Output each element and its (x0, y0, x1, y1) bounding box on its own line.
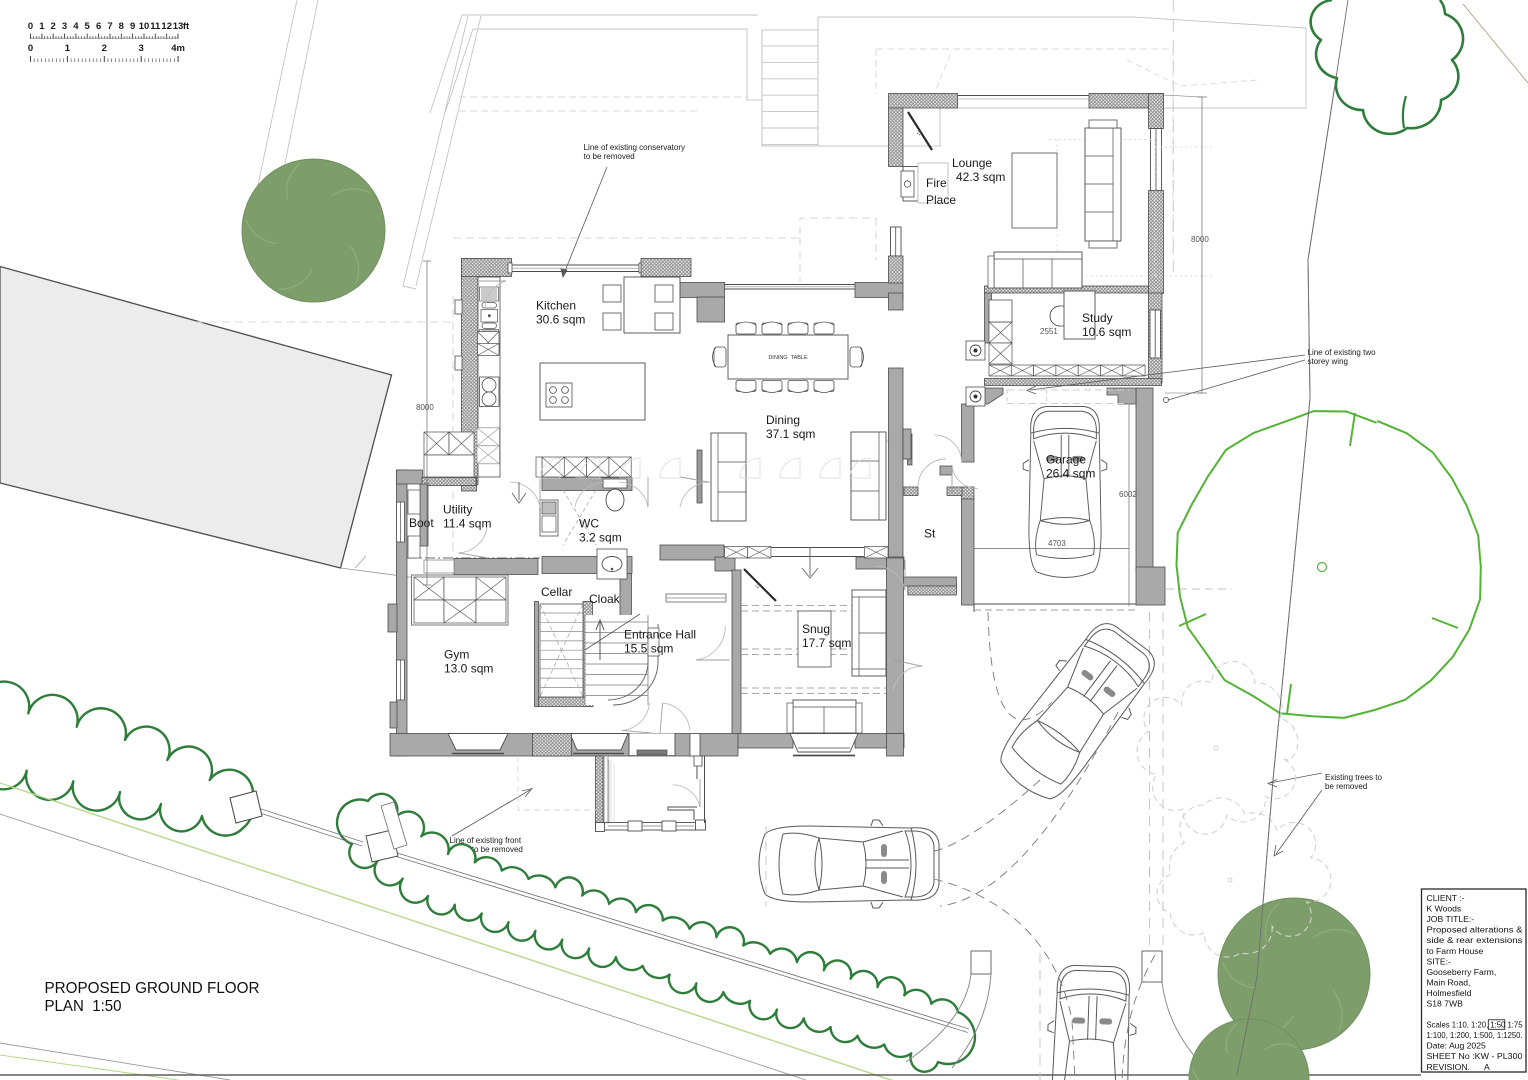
svg-text:Holmesfield: Holmesfield (1427, 988, 1472, 998)
svg-text:Scales 1:10, 1:20, 1:50 1:75: Scales 1:10, 1:20, 1:50 1:75 (1427, 1020, 1523, 1030)
svg-text:Garage: Garage (1046, 453, 1086, 467)
svg-text:St: St (924, 527, 936, 541)
svg-text:Cellar: Cellar (541, 585, 572, 599)
svg-text:6: 6 (96, 21, 101, 32)
svg-text:13.0 sqm: 13.0 sqm (444, 662, 493, 676)
svg-text:Lounge: Lounge (952, 156, 992, 170)
svg-text:30.6 sqm: 30.6 sqm (536, 313, 585, 327)
svg-text:1: 1 (65, 43, 71, 54)
svg-text:Boot: Boot (409, 516, 434, 530)
svg-text:37.1 sqm: 37.1 sqm (766, 427, 815, 441)
svg-text:ft: ft (183, 21, 190, 32)
svg-text:1:100, 1:200, 1:500, 1:1250.: 1:100, 1:200, 1:500, 1:1250. (1427, 1030, 1523, 1040)
svg-text:2: 2 (51, 21, 56, 32)
svg-text:Existing trees to: Existing trees to (1325, 773, 1382, 782)
svg-text:4703: 4703 (1048, 539, 1066, 548)
svg-text:to Farm House: to Farm House (1427, 946, 1484, 956)
svg-text:1: 1 (39, 21, 45, 32)
svg-text:10: 10 (139, 21, 150, 32)
svg-text:SITE:-: SITE:- (1427, 956, 1451, 966)
svg-text:REVISION.: REVISION. (1427, 1062, 1470, 1072)
svg-text:4m: 4m (171, 43, 185, 54)
svg-text:11: 11 (150, 21, 161, 32)
svg-text:PROPOSED GROUND FLOOR: PROPOSED GROUND FLOOR (45, 980, 260, 997)
svg-text:3: 3 (139, 43, 144, 54)
svg-text:Utility: Utility (443, 503, 472, 517)
svg-text:Line of existing two: Line of existing two (1308, 348, 1377, 357)
svg-text:17.7 sqm: 17.7 sqm (802, 636, 851, 650)
svg-text:SHEET No :KW - PL300: SHEET No :KW - PL300 (1427, 1051, 1523, 1061)
svg-text:Place: Place (926, 193, 956, 207)
svg-text:storey wing: storey wing (1308, 357, 1348, 366)
svg-text:3: 3 (62, 21, 67, 32)
svg-text:Main Road,: Main Road, (1427, 977, 1471, 987)
svg-text:be removed: be removed (1325, 782, 1367, 791)
svg-text:0: 0 (28, 21, 33, 32)
svg-text:Study: Study (1082, 311, 1113, 325)
svg-text:Kitchen: Kitchen (536, 299, 576, 313)
svg-text:13: 13 (173, 21, 184, 32)
svg-text:Fire: Fire (926, 176, 947, 190)
svg-text:10.6 sqm: 10.6 sqm (1082, 325, 1131, 339)
svg-text:CLIENT :-: CLIENT :- (1427, 893, 1465, 903)
svg-text:Entrance Hall: Entrance Hall (624, 628, 696, 642)
svg-text:PLAN 1:50: PLAN 1:50 (45, 998, 122, 1015)
svg-text:8: 8 (119, 21, 124, 32)
svg-text:3.2 sqm: 3.2 sqm (579, 531, 622, 545)
svg-text:to be removed: to be removed (584, 152, 635, 161)
svg-text:15.5 sqm: 15.5 sqm (624, 642, 673, 656)
svg-text:2551: 2551 (1040, 327, 1058, 336)
svg-text:9: 9 (130, 21, 135, 32)
svg-text:WC: WC (579, 517, 599, 531)
svg-text:42.3 sqm: 42.3 sqm (956, 170, 1005, 184)
svg-text:Cloak: Cloak (589, 592, 621, 606)
svg-text:S18 7WB: S18 7WB (1427, 999, 1464, 1009)
svg-text:26.4 sqm: 26.4 sqm (1046, 467, 1095, 481)
svg-text:K Woods: K Woods (1427, 904, 1462, 914)
svg-text:Dining: Dining (766, 413, 800, 427)
svg-text:A: A (1484, 1062, 1490, 1072)
svg-text:DINING TABLE: DINING TABLE (768, 355, 808, 361)
svg-text:Gooseberry Farm,: Gooseberry Farm, (1427, 967, 1497, 977)
svg-text:12: 12 (161, 21, 172, 32)
svg-text:Snug: Snug (802, 622, 830, 636)
svg-text:8000: 8000 (416, 403, 434, 412)
svg-text:4: 4 (73, 21, 79, 32)
svg-text:5: 5 (85, 21, 91, 32)
svg-text:JOB TITLE:-: JOB TITLE:- (1427, 914, 1475, 924)
svg-text:side & rear extensions: side & rear extensions (1427, 935, 1523, 945)
svg-text:Date: Aug 2025: Date: Aug 2025 (1427, 1041, 1486, 1051)
svg-text:Gym: Gym (444, 648, 469, 662)
svg-text:2: 2 (102, 43, 107, 54)
svg-text:0: 0 (28, 43, 33, 54)
svg-text:Proposed alterations &: Proposed alterations & (1427, 925, 1523, 935)
svg-text:7: 7 (107, 21, 112, 32)
svg-text:Line of existing conservatory: Line of existing conservatory (584, 143, 685, 152)
svg-text:11.4 sqm: 11.4 sqm (443, 517, 491, 531)
svg-text:6002: 6002 (1119, 490, 1137, 499)
svg-text:8000: 8000 (1191, 235, 1209, 244)
